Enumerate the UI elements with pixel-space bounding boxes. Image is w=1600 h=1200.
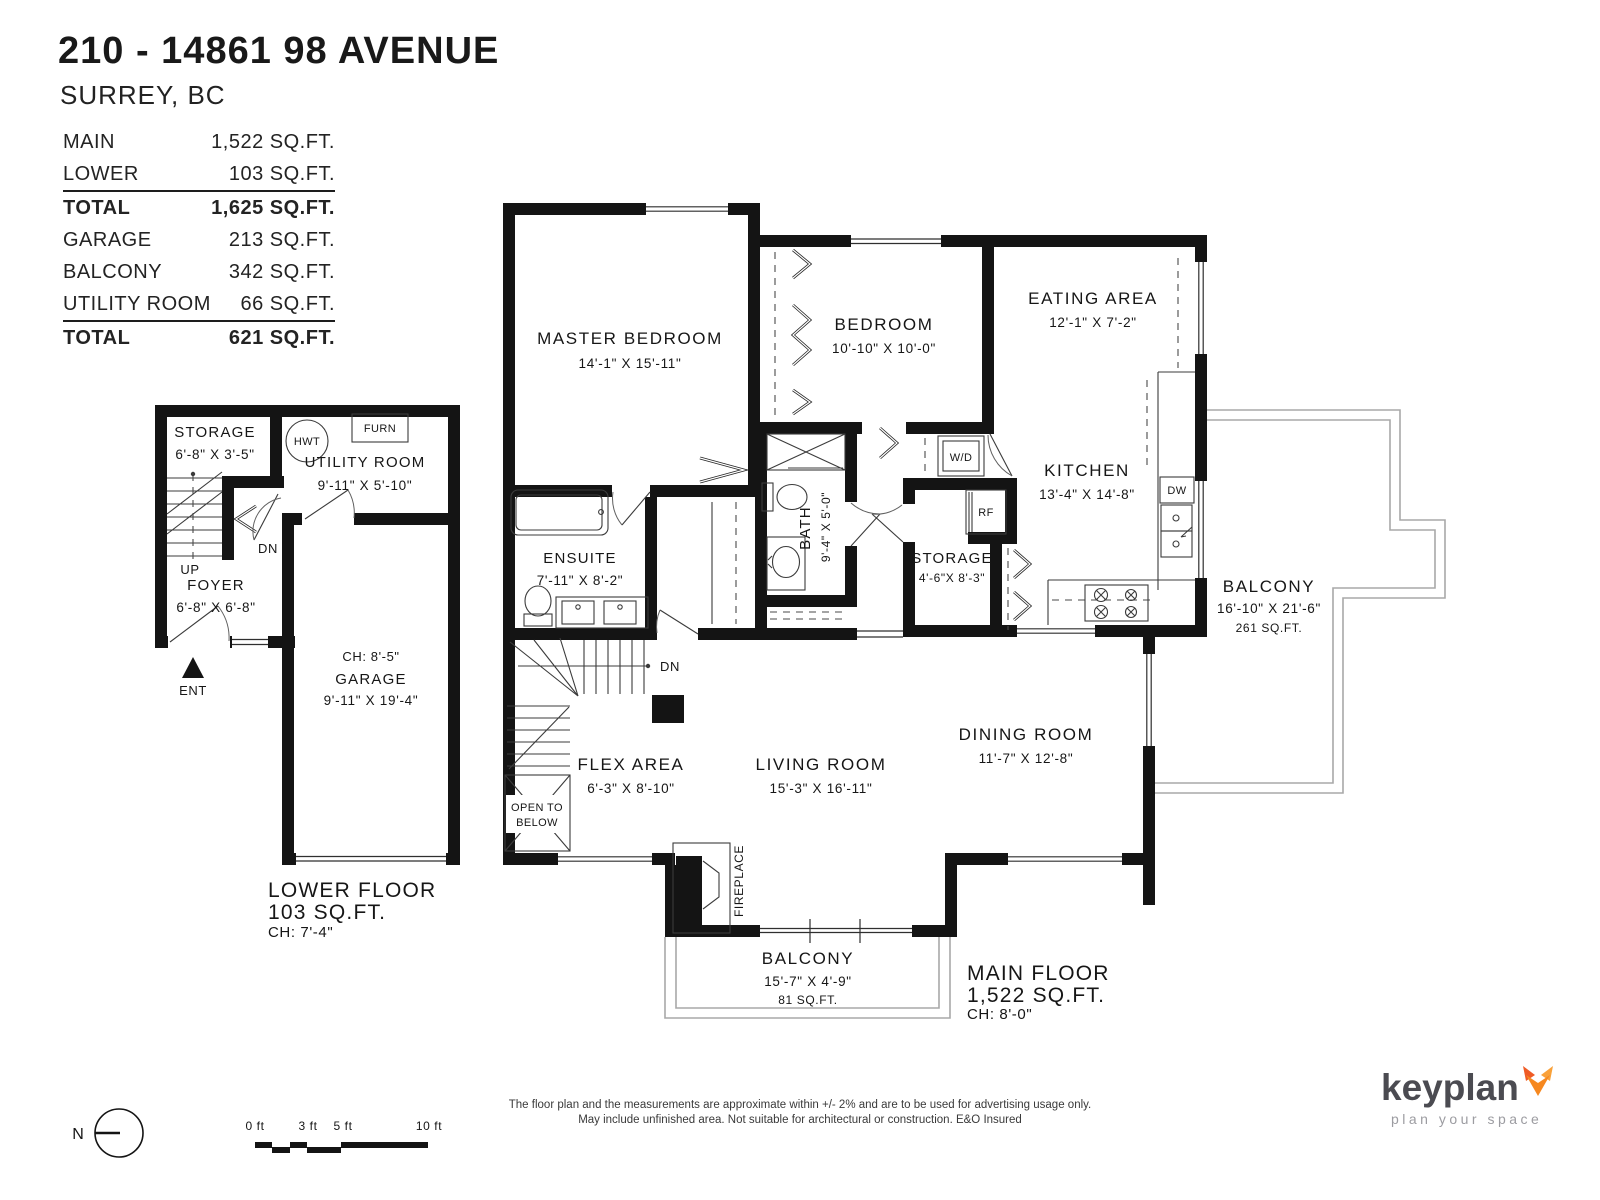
- room-dims-ensuite: 7'-11" X 8'-2": [537, 573, 624, 588]
- lower-floor-plan: HWT FURN ENT STORAGE 6'-8" X 3'-5" UTILI…: [155, 405, 460, 941]
- keyplan-logo: keyplan plan your space: [1381, 1068, 1561, 1127]
- fireplace-label: FIREPLACE: [732, 845, 746, 917]
- balcony-right-dims: 16'-10" X 21'-6": [1217, 601, 1321, 616]
- floor-plan-drawing: HWT FURN ENT STORAGE 6'-8" X 3'-5" UTILI…: [0, 0, 1600, 1200]
- logo-tagline: plan your space: [1381, 1111, 1561, 1127]
- scale-bar: 0 ft 3 ft 5 ft 10 ft: [245, 1119, 442, 1153]
- room-dims-bath: 9'-4" X 5'-0": [819, 492, 833, 562]
- room-dims-dining-room: 11'-7" X 12'-8": [979, 751, 1074, 766]
- room-label-flex-area: FLEX AREA: [578, 755, 685, 774]
- floor-plan-page: 210 - 14861 98 AVENUE SURREY, BC MAIN 1,…: [0, 0, 1600, 1200]
- disclaimer-line-1: The floor plan and the measurements are …: [509, 1098, 1091, 1113]
- room-label-living-room: LIVING ROOM: [756, 755, 887, 774]
- balcony-bottom-area: 81 SQ.FT.: [778, 993, 837, 1007]
- main-floor-area: 1,522 SQ.FT.: [967, 984, 1105, 1007]
- room-label-eating-area: EATING AREA: [1028, 289, 1158, 308]
- lower-floor-title: LOWER FLOOR: [268, 879, 436, 902]
- hwt-label: HWT: [294, 436, 320, 448]
- balcony-right-area: 261 SQ.FT.: [1236, 621, 1303, 635]
- room-label-dining-room: DINING ROOM: [959, 725, 1094, 744]
- balcony-bottom-dims: 15'-7" X 4'-9": [764, 974, 852, 989]
- room-label-storage-lower: STORAGE: [174, 424, 255, 441]
- room-label-garage: GARAGE: [335, 671, 406, 688]
- balcony-bottom-label: BALCONY: [762, 949, 854, 968]
- stairs-up-label: UP: [180, 562, 199, 577]
- lower-floor-area: 103 SQ.FT.: [268, 901, 386, 924]
- room-label-utility: UTILITY ROOM: [305, 454, 426, 471]
- scale-tick-3: 3 ft: [298, 1119, 317, 1133]
- scale-tick-10: 10 ft: [416, 1119, 442, 1133]
- lower-floor-ceiling: CH: 7'-4": [268, 924, 333, 941]
- room-dims-utility: 9'-11" X 5'-10": [318, 478, 413, 493]
- compass: N: [72, 1109, 143, 1157]
- room-dims-storage-main: 4'-6"X 8'-3": [919, 571, 985, 585]
- room-dims-eating-area: 12'-1" X 7'-2": [1049, 315, 1137, 330]
- room-dims-master-bedroom: 14'-1" X 15'-11": [579, 356, 682, 371]
- main-floor-ceiling: CH: 8'-0": [967, 1006, 1032, 1023]
- room-label-bedroom: BEDROOM: [834, 315, 933, 334]
- furnace-label: FURN: [364, 423, 396, 435]
- room-dims-living-room: 15'-3" X 16'-11": [770, 781, 873, 796]
- room-dims-kitchen: 13'-4" X 14'-8": [1039, 487, 1135, 502]
- disclaimer-line-2: May include unfinished area. Not suitabl…: [509, 1113, 1091, 1128]
- disclaimer: The floor plan and the measurements are …: [509, 1098, 1091, 1128]
- room-dims-storage-lower: 6'-8" X 3'-5": [175, 447, 254, 462]
- open-below-label-1: OPEN TO: [511, 802, 563, 814]
- entry-label: ENT: [179, 683, 207, 698]
- entry-arrow-icon: [182, 657, 204, 678]
- room-label-foyer: FOYER: [187, 577, 245, 594]
- room-label-bath: BATH: [797, 506, 814, 550]
- dw-label: DW: [1167, 485, 1186, 497]
- room-label-ensuite: ENSUITE: [543, 550, 616, 567]
- room-label-storage-main: STORAGE: [911, 550, 992, 567]
- balcony-right-label: BALCONY: [1223, 577, 1315, 596]
- room-label-kitchen: KITCHEN: [1044, 461, 1130, 480]
- scale-tick-5: 5 ft: [333, 1119, 352, 1133]
- room-label-master-bedroom: MASTER BEDROOM: [537, 329, 723, 348]
- wd-label: W/D: [950, 452, 973, 464]
- stairs-dn-label-lower: DN: [258, 541, 278, 556]
- fox-icon: [1521, 1066, 1555, 1098]
- main-floor-title: MAIN FLOOR: [967, 962, 1110, 985]
- garage-ceiling-label: CH: 8'-5": [342, 649, 399, 664]
- open-below-label-2: BELOW: [516, 817, 558, 829]
- rf-label: RF: [978, 507, 993, 519]
- scale-tick-0: 0 ft: [245, 1119, 264, 1133]
- room-dims-foyer: 6'-8" X 6'-8": [176, 600, 255, 615]
- room-dims-flex-area: 6'-3" X 8'-10": [587, 781, 675, 796]
- room-dims-bedroom: 10'-10" X 10'-0": [832, 341, 936, 356]
- stairs-dn-label-main: DN: [660, 659, 680, 674]
- room-dims-garage: 9'-11" X 19'-4": [324, 693, 419, 708]
- logo-wordmark: keyplan: [1381, 1068, 1519, 1108]
- compass-north-label: N: [72, 1126, 84, 1143]
